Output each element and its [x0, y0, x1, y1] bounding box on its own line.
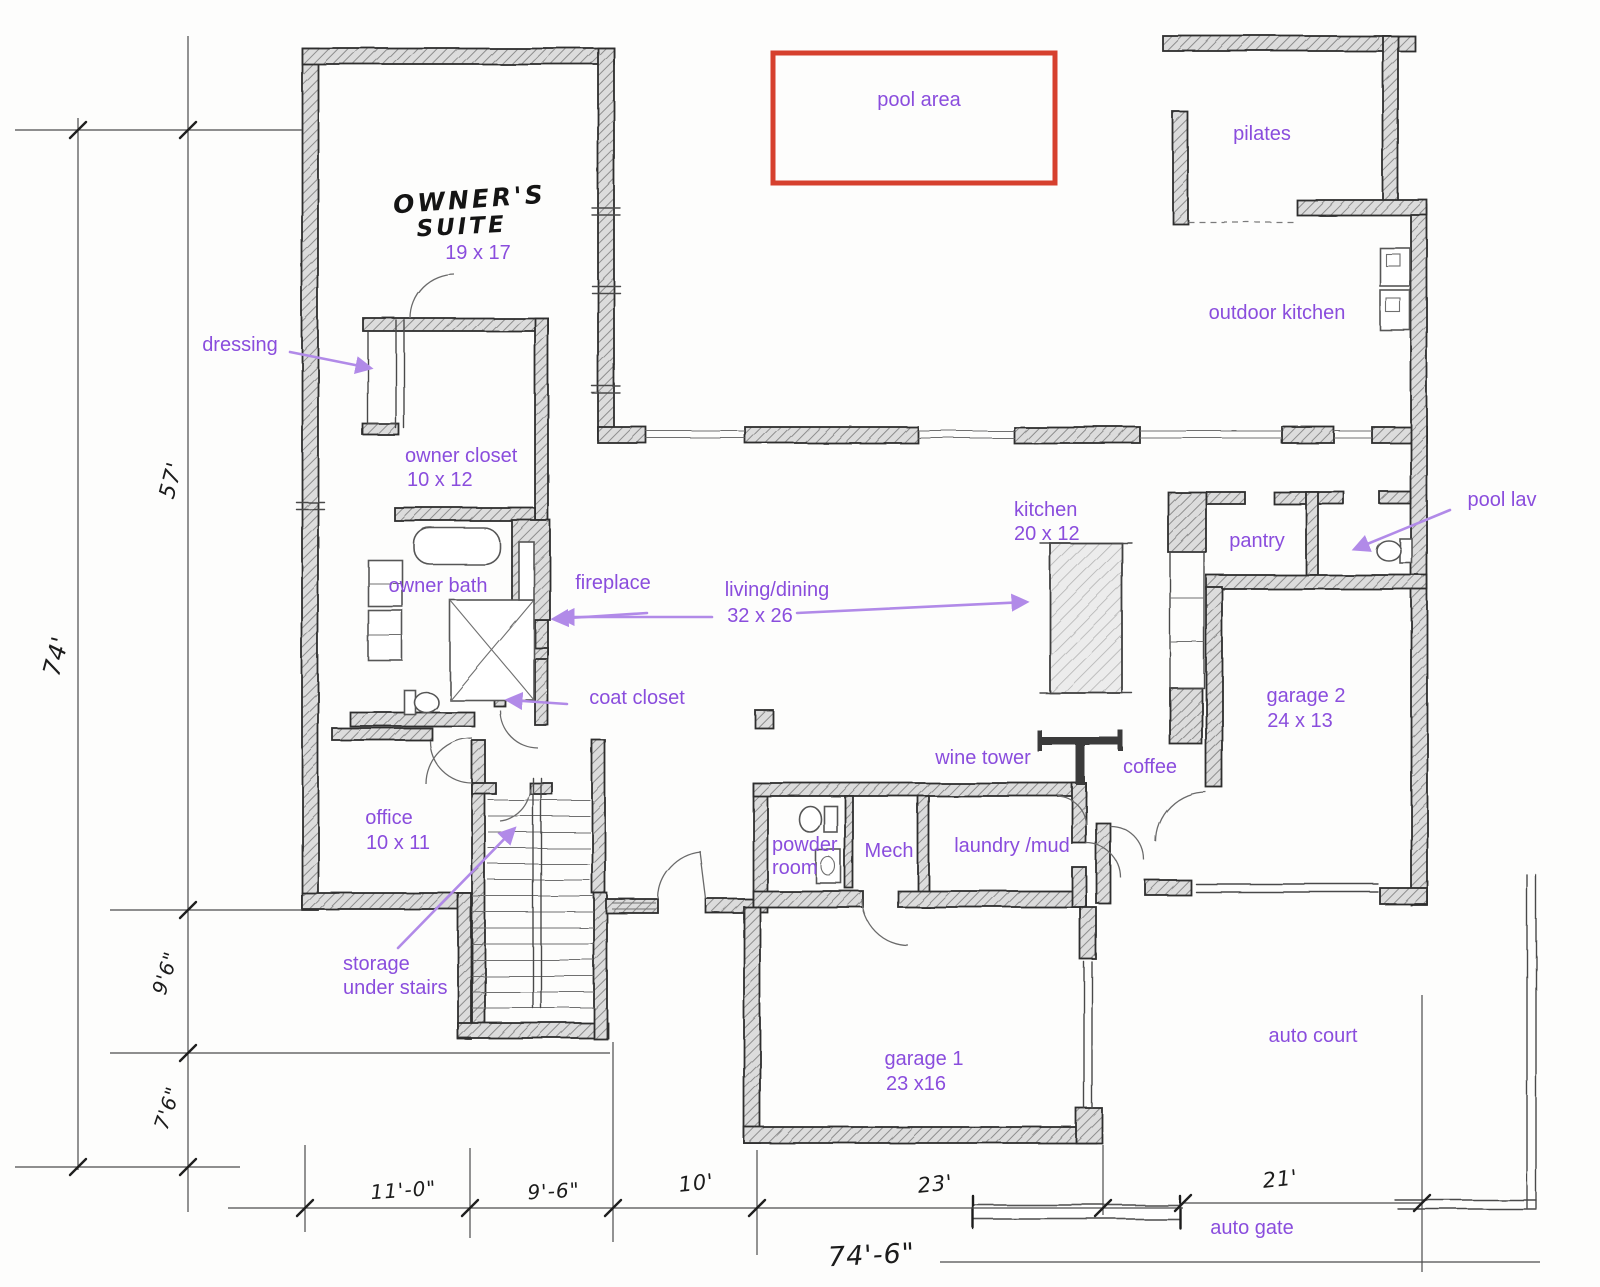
wall-laundry-right-a — [1072, 783, 1086, 843]
label-garage-1-size: 23 x16 — [886, 1073, 946, 1095]
stair-treads — [472, 778, 594, 1008]
wall-living-top — [1282, 427, 1334, 443]
label-laundry-mud: laundry /mud — [954, 835, 1070, 857]
label-storage-1: storage — [343, 953, 410, 975]
label-kitchen: kitchen — [1014, 499, 1077, 521]
wall-coffee-counter — [1170, 688, 1202, 744]
door-garage2-hall — [1156, 792, 1206, 842]
dressing-partition — [368, 332, 396, 424]
wall-closet-right — [535, 318, 548, 520]
label-living-dining-size: 32 x 26 — [727, 605, 793, 627]
wall-garage2-bottom-left — [1145, 880, 1191, 895]
wall-south-entry-left — [606, 899, 658, 913]
door-coat-closet — [500, 710, 538, 748]
dim-bottom-5: 21' — [1261, 1165, 1299, 1193]
wall-stair-bottom — [458, 1023, 608, 1038]
wall-stair-lower-left — [458, 893, 471, 1039]
label-owner-closet-size: 10 x 12 — [407, 469, 473, 491]
room-labels: pool area pilates outdoor kitchen 19 x 1… — [202, 89, 1536, 1239]
outdoor-kitchen-counter — [1380, 248, 1410, 330]
door-entry — [658, 852, 701, 899]
note-owners-suite-2: SUITE — [416, 212, 507, 243]
label-auto-court: auto court — [1269, 1025, 1358, 1047]
label-storage-2: under stairs — [343, 977, 448, 999]
wall-cabinets — [1168, 492, 1206, 552]
floor-plan-canvas: pool area pilates outdoor kitchen 19 x 1… — [0, 0, 1600, 1287]
dim-left-mid: 9'6" — [147, 948, 183, 997]
wall-garage1-right-pillar — [1076, 1108, 1102, 1143]
wall-pantry-top-c — [1380, 492, 1411, 504]
dim-bottom-4: 23' — [916, 1170, 954, 1198]
toilet-powder — [799, 806, 837, 832]
label-garage-2: garage 2 — [1267, 685, 1346, 707]
label-auto-gate: auto gate — [1210, 1217, 1293, 1239]
bathtub — [414, 528, 500, 564]
label-living-dining: living/dining — [725, 579, 830, 601]
wall-owner-right — [598, 48, 614, 440]
wall-pilates-left — [1173, 112, 1188, 224]
wall-closet-mid — [395, 508, 535, 521]
label-powder-room-2: room — [772, 857, 818, 879]
wall-stair-right — [592, 740, 605, 893]
door-bedroom-hall — [426, 738, 472, 784]
dim-left-total: 74' — [38, 633, 75, 679]
wall-powder-top — [753, 783, 1086, 796]
auto-gate-bar — [973, 1196, 1180, 1228]
wall-stair-stub-a — [472, 783, 496, 794]
label-wine-tower: wine tower — [934, 747, 1031, 769]
label-kitchen-size: 20 x 12 — [1014, 523, 1080, 545]
dim-left-lower: 7'6" — [149, 1083, 185, 1132]
property-line — [1395, 875, 1536, 1209]
label-office-size: 10 x 11 — [366, 832, 430, 854]
dimension-lines — [15, 36, 1540, 1272]
wall-office-top — [332, 728, 432, 740]
label-garage-1: garage 1 — [885, 1048, 964, 1070]
label-dressing: dressing — [202, 334, 278, 356]
wall-house-right — [1411, 205, 1427, 905]
wall-garage1-bottom — [744, 1127, 1096, 1143]
label-owners-suite-size: 19 x 17 — [445, 242, 511, 264]
label-powder-room-1: powder — [772, 834, 838, 856]
wall-bath-right — [535, 620, 548, 725]
dim-bottom-3: 10' — [677, 1169, 715, 1197]
fireplace-opening — [519, 542, 534, 600]
wall-garage1-right-top — [1080, 907, 1096, 959]
wall-stair-lower-right — [594, 893, 607, 1039]
wall-dressing-stub — [363, 424, 399, 435]
door-office — [430, 741, 472, 783]
wall-closet-top — [363, 318, 548, 331]
toilet-pool-lav — [1377, 539, 1412, 563]
wall-garage2-bottom-right — [1380, 888, 1427, 904]
wall-garage1-top-a — [753, 891, 863, 907]
wall-owner-top — [302, 48, 614, 64]
toilet-bath — [404, 690, 438, 714]
label-pool-lav: pool lav — [1468, 489, 1537, 511]
living-dining-arrow-right — [797, 602, 1026, 613]
label-coffee: coffee — [1123, 756, 1177, 778]
label-pool-area: pool area — [877, 89, 961, 111]
wall-garage2-left — [1206, 587, 1222, 787]
wall-pilates-top — [1163, 36, 1415, 51]
dim-bottom-2: 9'-6" — [527, 1178, 581, 1205]
wall-laundry-right-b — [1072, 867, 1086, 907]
dim-bottom-1: 11'-0" — [370, 1176, 438, 1205]
label-owner-closet: owner closet — [405, 445, 518, 467]
wall-pilates-jut — [1297, 200, 1427, 215]
label-garage-2-size: 24 x 13 — [1267, 710, 1333, 732]
wall-garage2-top — [1206, 575, 1427, 589]
dim-left-upper: 57' — [155, 459, 189, 501]
wall-pilates-right — [1383, 36, 1398, 208]
dim-bottom-total: 74'-6" — [827, 1238, 916, 1274]
kitchen-island — [1050, 543, 1122, 693]
label-pantry: pantry — [1229, 530, 1285, 552]
wall-pantry-top-a — [1206, 492, 1245, 504]
wine-tower-structure — [1037, 730, 1123, 785]
living-column — [755, 710, 773, 728]
floor-plan-sketch: pool area pilates outdoor kitchen 19 x 1… — [0, 0, 1600, 1287]
wall-powder-divider — [845, 796, 853, 888]
wall-garage1-left — [744, 907, 760, 1143]
label-outdoor-kitchen: outdoor kitchen — [1209, 302, 1346, 324]
wall-breezeway-pillar — [1096, 823, 1110, 903]
label-office: office — [365, 807, 412, 829]
door-dressing — [410, 274, 454, 318]
label-pilates: pilates — [1233, 123, 1291, 145]
pool-area-box — [773, 53, 1055, 183]
wall-living-top — [598, 427, 646, 443]
label-owner-bath: owner bath — [389, 575, 488, 597]
wall-living-top — [745, 427, 918, 443]
wall-owner-left — [302, 48, 318, 910]
door-breezeway — [1110, 826, 1144, 860]
label-fireplace: fireplace — [575, 572, 651, 594]
wall-garage1-top-b — [898, 891, 1086, 907]
wall-pantry-divider — [1306, 492, 1318, 575]
label-mech: Mech — [865, 840, 914, 862]
fridge-cabinets — [1170, 552, 1204, 688]
wall-living-top — [1014, 427, 1140, 443]
label-coat-closet: coat closet — [589, 687, 685, 709]
